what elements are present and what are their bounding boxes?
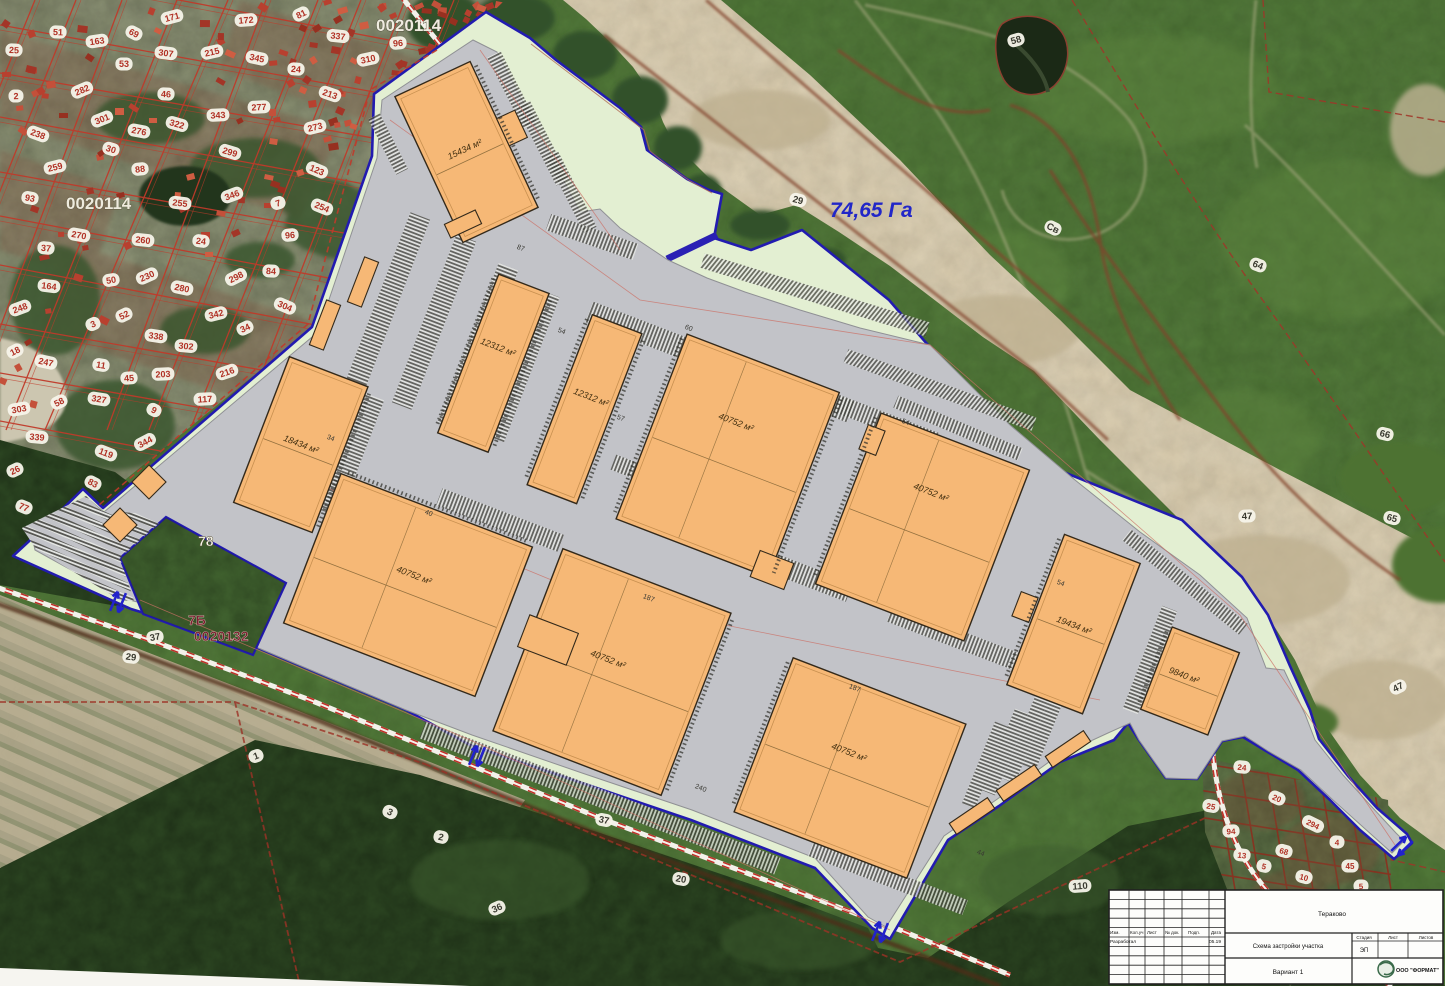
svg-text:Кол.уч: Кол.уч	[1130, 930, 1144, 935]
svg-text:53: 53	[119, 59, 129, 69]
svg-text:ЭП: ЭП	[1360, 948, 1369, 954]
svg-text:117: 117	[197, 394, 212, 405]
svg-text:13: 13	[1237, 851, 1248, 861]
svg-text:37: 37	[149, 631, 161, 644]
svg-text:24: 24	[1237, 763, 1247, 773]
svg-text:Изм.: Изм.	[1110, 930, 1120, 935]
svg-text:343: 343	[210, 110, 226, 121]
svg-text:ООО "ФОРМАТ": ООО "ФОРМАТ"	[1396, 968, 1439, 974]
svg-text:№ док.: № док.	[1165, 930, 1179, 935]
svg-text:96: 96	[393, 38, 404, 49]
svg-text:Лист: Лист	[1388, 935, 1398, 940]
svg-text:29: 29	[125, 652, 137, 664]
svg-text:84: 84	[266, 266, 276, 276]
svg-text:302: 302	[178, 341, 194, 352]
svg-text:46: 46	[161, 89, 171, 99]
svg-text:24: 24	[195, 236, 206, 247]
svg-text:Схема застройки участка: Схема застройки участка	[1253, 943, 1324, 950]
svg-text:0020132: 0020132	[194, 628, 249, 644]
svg-text:96: 96	[285, 230, 296, 241]
svg-text:88: 88	[135, 164, 146, 175]
svg-text:05.19: 05.19	[1209, 939, 1221, 945]
svg-text:51: 51	[53, 27, 63, 37]
svg-text:25: 25	[9, 45, 19, 55]
svg-text:164: 164	[41, 280, 57, 292]
svg-text:Подп.: Подп.	[1188, 930, 1200, 935]
svg-text:94: 94	[1226, 827, 1236, 836]
svg-text:93: 93	[24, 192, 36, 204]
svg-text:Разработал: Разработал	[1110, 939, 1136, 945]
svg-text:Тераково: Тераково	[1318, 911, 1346, 918]
svg-text:11: 11	[95, 360, 106, 371]
svg-text:45: 45	[124, 373, 135, 384]
svg-text:45: 45	[1346, 862, 1355, 871]
svg-text:0020114: 0020114	[66, 194, 132, 213]
svg-text:172: 172	[238, 15, 254, 26]
svg-text:277: 277	[251, 102, 267, 113]
svg-text:Листов: Листов	[1419, 935, 1434, 940]
svg-text:Вариант 1: Вариант 1	[1273, 969, 1304, 976]
svg-text:78: 78	[198, 533, 214, 549]
svg-text:20: 20	[675, 873, 687, 886]
svg-text:37: 37	[41, 243, 52, 254]
svg-text:255: 255	[172, 197, 188, 209]
svg-text:2: 2	[13, 91, 18, 101]
svg-text:260: 260	[135, 234, 151, 246]
svg-text:74,65 Га: 74,65 Га	[830, 199, 913, 222]
svg-text:50: 50	[105, 274, 116, 285]
svg-text:339: 339	[29, 432, 45, 443]
svg-text:203: 203	[155, 369, 171, 380]
svg-text:Лист: Лист	[1147, 930, 1157, 935]
svg-text:307: 307	[158, 47, 174, 59]
svg-text:24: 24	[291, 64, 302, 75]
svg-text:7Б: 7Б	[188, 612, 206, 628]
svg-text:Стадия: Стадия	[1356, 935, 1372, 940]
svg-text:Дата: Дата	[1211, 930, 1221, 935]
svg-text:0020114: 0020114	[376, 16, 442, 35]
svg-text:47: 47	[1242, 511, 1253, 522]
svg-text:110: 110	[1072, 881, 1088, 893]
svg-text:337: 337	[330, 30, 346, 42]
svg-text:163: 163	[89, 35, 105, 47]
svg-text:338: 338	[148, 330, 164, 342]
svg-text:37: 37	[598, 814, 610, 827]
